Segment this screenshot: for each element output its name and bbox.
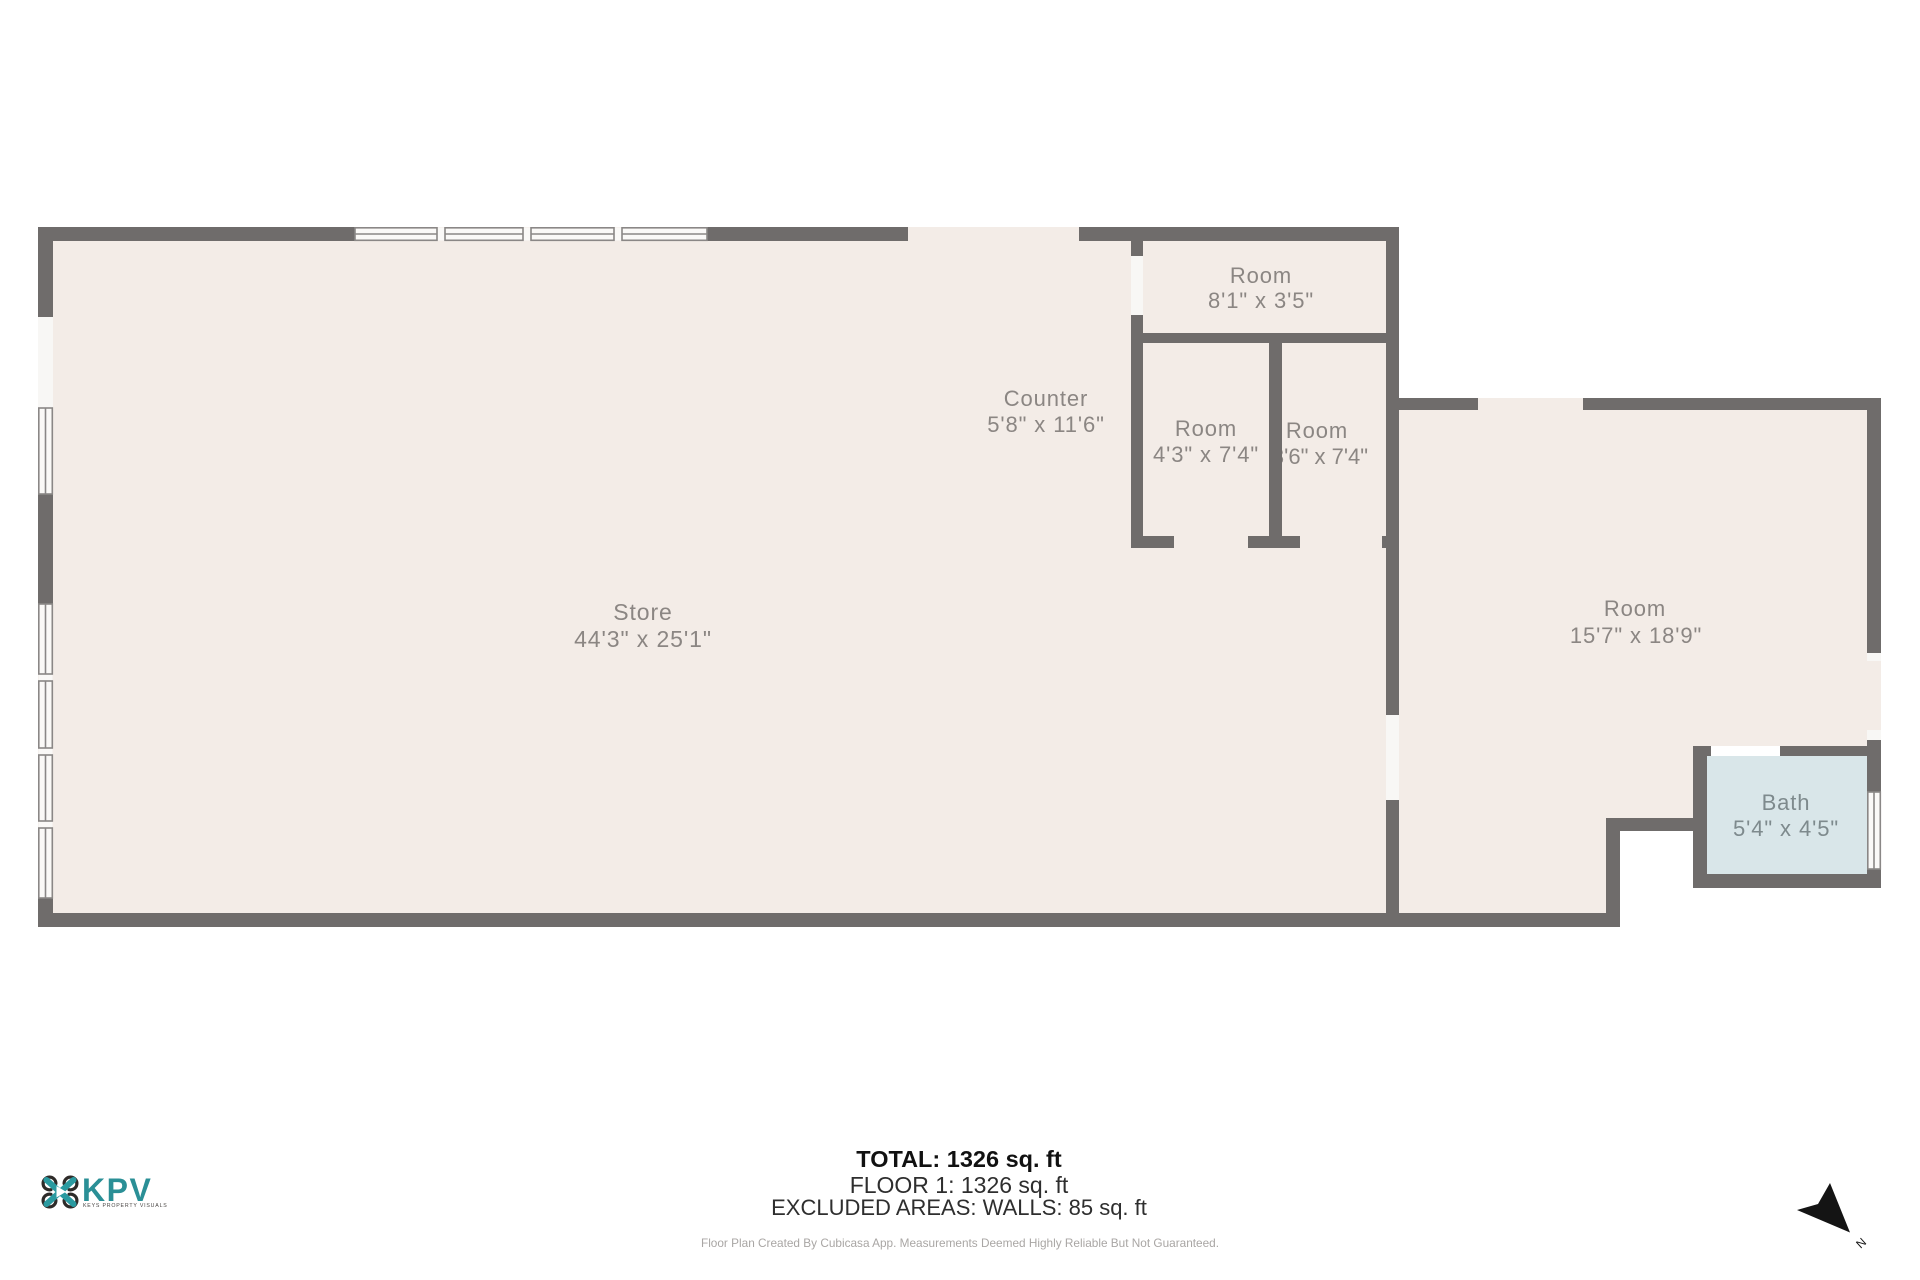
svg-text:Bath: Bath — [1762, 790, 1811, 815]
svg-text:3'6" x 7'4": 3'6" x 7'4" — [1272, 444, 1368, 469]
svg-text:EXCLUDED AREAS: WALLS: 85 sq.: EXCLUDED AREAS: WALLS: 85 sq. ft — [771, 1195, 1147, 1220]
svg-text:Room: Room — [1175, 416, 1237, 441]
svg-text:15'7" x 18'9": 15'7" x 18'9" — [1570, 623, 1702, 648]
svg-text:TOTAL: 1326 sq. ft: TOTAL: 1326 sq. ft — [856, 1146, 1062, 1172]
svg-text:8'1" x 3'5": 8'1" x 3'5" — [1208, 288, 1314, 313]
svg-text:Room: Room — [1604, 596, 1666, 621]
svg-text:Room: Room — [1230, 263, 1292, 288]
svg-text:4'3" x 7'4": 4'3" x 7'4" — [1153, 442, 1259, 467]
svg-text:Counter: Counter — [1004, 386, 1089, 411]
svg-text:5'4" x 4'5": 5'4" x 4'5" — [1733, 816, 1839, 841]
svg-text:Store: Store — [613, 599, 672, 625]
svg-text:Floor Plan Created By Cubicasa: Floor Plan Created By Cubicasa App. Meas… — [701, 1236, 1219, 1250]
svg-text:Room: Room — [1286, 418, 1348, 443]
svg-text:5'8" x 11'6": 5'8" x 11'6" — [987, 412, 1105, 437]
svg-text:KEYS PROPERTY VISUALS: KEYS PROPERTY VISUALS — [83, 1203, 168, 1209]
svg-text:44'3" x 25'1": 44'3" x 25'1" — [574, 626, 712, 652]
